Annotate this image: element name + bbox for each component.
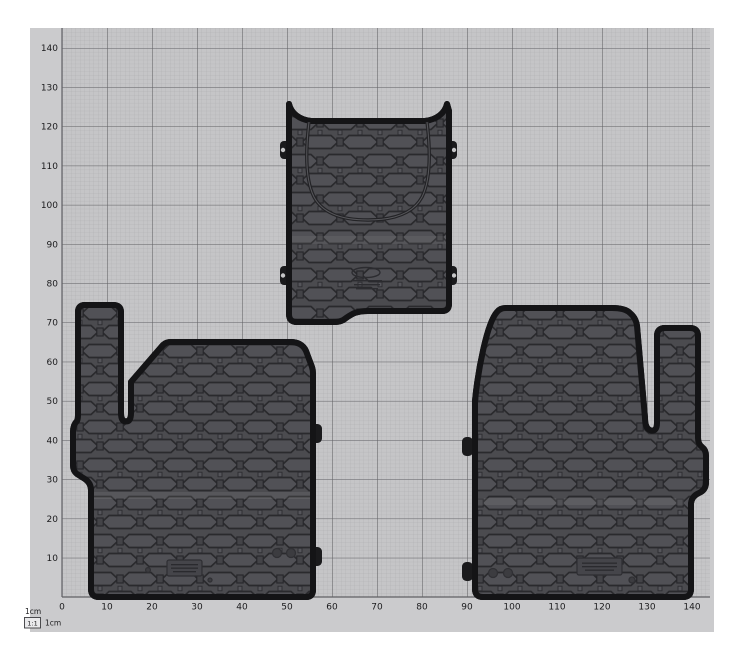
x-axis-labels: 0102030405060708090100110120130140 [59, 603, 701, 613]
right-mat-label-emboss [577, 558, 622, 575]
left-mat [73, 305, 322, 597]
legend-1cm-side: 1cm [45, 619, 61, 628]
scale-box-label: 1:1 [27, 620, 37, 628]
x-axis-label: 90 [461, 603, 473, 613]
x-axis-label: 20 [146, 603, 158, 613]
right-mat-light-reflection [478, 498, 684, 505]
measuring-board-photo: 0102030405060708090100110120130140 14013… [0, 0, 750, 660]
left-mat-light-reflection [94, 492, 310, 499]
center-mat [280, 104, 457, 322]
x-axis-label: 120 [593, 603, 610, 613]
x-axis-label: 30 [191, 603, 203, 613]
x-axis-label: 40 [236, 603, 248, 613]
y-axis-label: 10 [47, 554, 59, 564]
y-axis-label: 30 [47, 476, 59, 486]
x-axis-label: 0 [59, 603, 65, 613]
center-mat-light-reflection [292, 236, 446, 244]
y-axis-label: 140 [41, 44, 58, 54]
x-axis-label: 110 [548, 603, 565, 613]
x-axis-label: 100 [503, 603, 520, 613]
y-axis-label: 110 [41, 162, 58, 172]
x-axis-label: 50 [281, 603, 293, 613]
y-axis-label: 80 [47, 279, 59, 289]
y-axis-label: 130 [41, 83, 58, 93]
y-axis-label: 40 [47, 436, 59, 446]
x-axis-label: 10 [101, 603, 113, 613]
y-axis-label: 120 [41, 123, 58, 133]
y-axis-label: 50 [47, 397, 59, 407]
y-axis-label: 90 [47, 240, 59, 250]
x-axis-label: 130 [638, 603, 655, 613]
left-mat-label-emboss [167, 560, 202, 576]
right-mat [462, 308, 706, 597]
y-axis-label: 60 [47, 358, 59, 368]
x-axis-label: 60 [326, 603, 338, 613]
y-axis-label: 20 [47, 515, 59, 525]
x-axis-label: 140 [683, 603, 700, 613]
y-axis-label: 70 [47, 319, 59, 329]
x-axis-label: 70 [371, 603, 383, 613]
y-axis-label: 100 [41, 201, 58, 211]
photo-floor-mats-on-grid: 0102030405060708090100110120130140 14013… [0, 0, 750, 660]
legend-1cm-top: 1cm [25, 607, 41, 616]
x-axis-label: 80 [416, 603, 428, 613]
